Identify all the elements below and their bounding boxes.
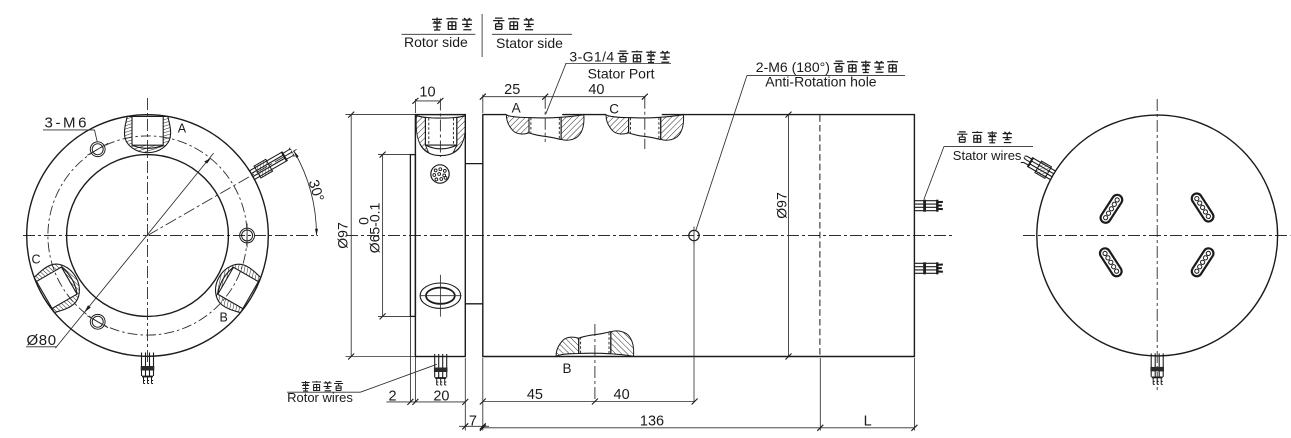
svg-text:Stator wires: Stator wires <box>953 148 1022 163</box>
svg-text:Anti-Rotation hole: Anti-Rotation hole <box>765 74 877 90</box>
svg-text:45: 45 <box>527 387 543 403</box>
svg-text:10: 10 <box>419 85 435 101</box>
svg-text:2: 2 <box>389 389 397 405</box>
svg-text:B: B <box>563 361 572 376</box>
svg-text:Ø97: Ø97 <box>774 192 790 219</box>
svg-text:20: 20 <box>433 388 449 404</box>
svg-text:136: 136 <box>640 414 664 430</box>
svg-text:B: B <box>220 310 228 324</box>
svg-text:25: 25 <box>504 82 520 98</box>
svg-text:Rotor side: Rotor side <box>404 34 468 50</box>
svg-text:Rotor wires: Rotor wires <box>287 390 353 405</box>
svg-text:Ø65-0.1: Ø65-0.1 <box>367 202 383 253</box>
svg-text:2-M6 (180°): 2-M6 (180°) <box>756 59 830 75</box>
svg-text:7: 7 <box>469 413 477 429</box>
svg-text:3-M6: 3-M6 <box>45 114 90 131</box>
svg-text:40: 40 <box>614 387 630 403</box>
svg-text:A: A <box>512 101 521 116</box>
svg-text:Stator Port: Stator Port <box>588 66 655 82</box>
svg-text:C: C <box>32 252 41 266</box>
svg-text:0: 0 <box>356 217 372 225</box>
svg-text:A: A <box>178 121 187 135</box>
svg-text:L: L <box>864 414 872 430</box>
svg-text:Stator side: Stator side <box>496 35 563 51</box>
svg-text:40: 40 <box>588 82 604 98</box>
svg-text:3-G1/4: 3-G1/4 <box>569 49 614 65</box>
svg-text:Ø97: Ø97 <box>335 222 351 249</box>
svg-text:C: C <box>609 102 619 117</box>
